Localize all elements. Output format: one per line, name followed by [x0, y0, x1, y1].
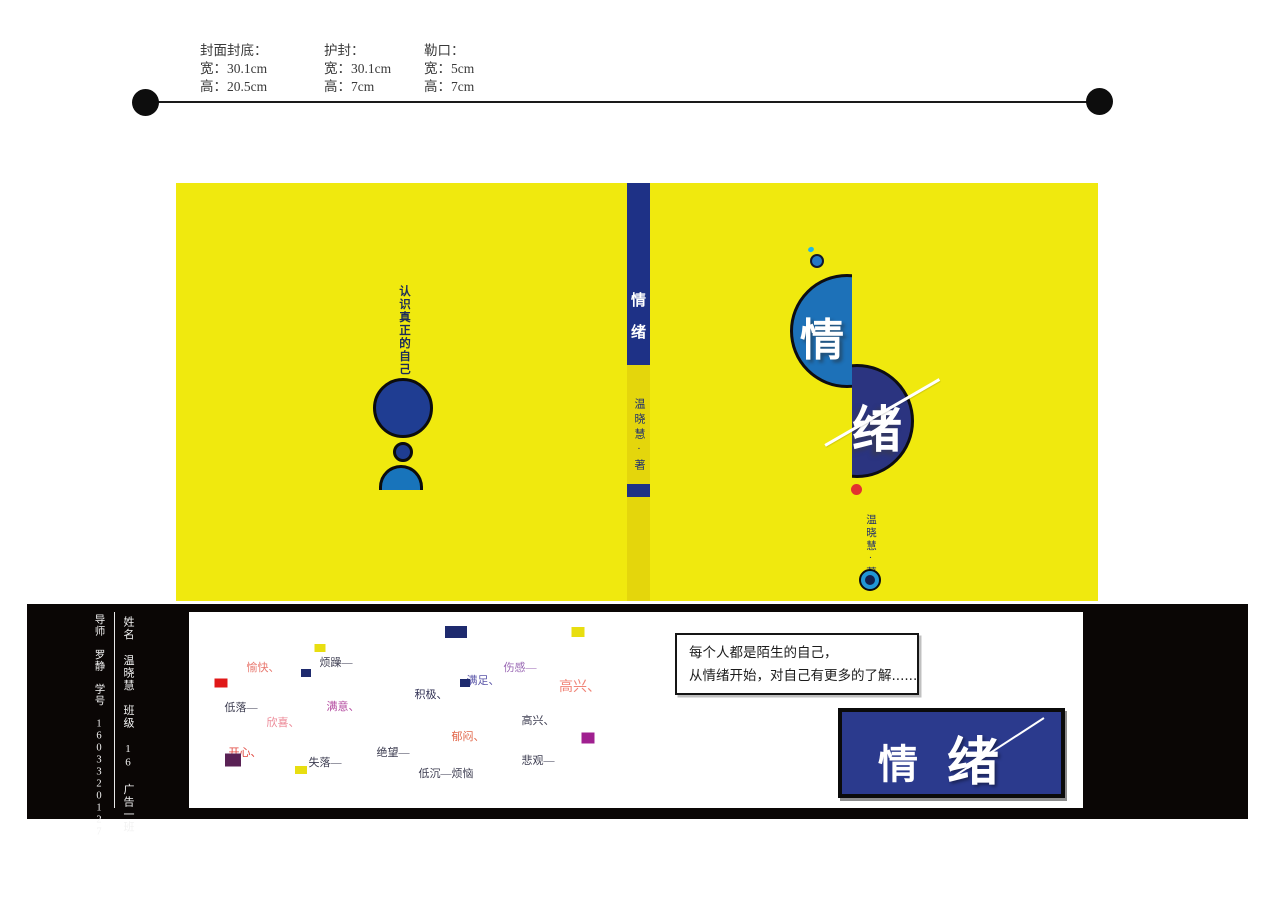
spec-height: 高：7cm — [424, 78, 524, 96]
spec-title: 护封： — [324, 42, 424, 60]
title-semicircle-right: 绪 — [852, 364, 914, 478]
spec-width: 宽：5cm — [424, 60, 524, 78]
spec-column-dust-jacket: 护封： 宽：30.1cm 高：7cm — [324, 42, 424, 96]
logo-char-xu: 绪 — [947, 720, 999, 795]
color-square — [301, 669, 311, 677]
emotion-word: 失落— — [309, 754, 342, 770]
emotion-word: 绝望— — [377, 744, 410, 760]
credits-divider — [114, 612, 115, 808]
color-square — [445, 626, 467, 638]
logo-box: 情 绪 — [838, 708, 1065, 798]
quote-line-1: 每个人都是陌生的自己， — [689, 642, 905, 665]
spec-height: 高：7cm — [324, 78, 424, 96]
color-square — [225, 754, 241, 767]
emotion-word: 满足、 — [467, 672, 500, 688]
quote-box: 每个人都是陌生的自己， 从情绪开始，对自己有更多的了解...... — [675, 633, 919, 695]
red-accent-dot — [851, 484, 862, 495]
spine-title-char-2: 绪 — [627, 321, 650, 342]
target-mark-core — [865, 575, 875, 585]
spec-title: 勒口： — [424, 42, 524, 60]
color-square — [295, 766, 307, 774]
target-mark — [859, 569, 881, 591]
emotion-word: 伤感— — [504, 659, 537, 675]
spec-block: 封面封底： 宽：30.1cm 高：20.5cm 护封： 宽：30.1cm 高：7… — [200, 42, 524, 96]
color-square — [315, 644, 326, 652]
dimension-line — [146, 101, 1099, 103]
color-square — [460, 679, 470, 687]
emotion-word: 悲观— — [522, 752, 555, 768]
emotion-word: 高兴、 — [522, 712, 555, 728]
emotion-word: 欣喜、 — [267, 714, 300, 730]
credits-advisor: 导师 罗静 学号 1603320127 — [93, 614, 104, 839]
spec-width: 宽：30.1cm — [324, 60, 424, 78]
figure-head-circle — [373, 378, 433, 438]
credits-student: 姓名 温晓慧 班级 16 广告一班 — [122, 616, 133, 834]
spec-column-flap: 勒口： 宽：5cm 高：7cm — [424, 42, 524, 96]
emotion-word: 低沉—烦恼 — [419, 765, 474, 781]
emotion-word: 积极、 — [415, 686, 448, 702]
spine-title-char-1: 情 — [627, 289, 650, 310]
blue-accent-circle — [810, 254, 824, 268]
color-square — [572, 627, 585, 637]
title-semicircle-left: 情 — [790, 274, 852, 388]
emotion-word: 愉快、 — [247, 659, 280, 675]
spine-author: 温晓慧·著 — [631, 398, 647, 474]
spec-width: 宽：30.1cm — [200, 60, 324, 78]
emotion-word: 高兴、 — [559, 676, 601, 696]
emotion-word: 郁闷、 — [452, 728, 485, 744]
title-char-qing: 情 — [800, 304, 844, 368]
emotion-word: 满意、 — [327, 698, 360, 714]
dimension-endpoint-right — [1086, 88, 1113, 115]
quote-line-2: 从情绪开始，对自己有更多的了解...... — [689, 665, 905, 688]
color-square — [215, 679, 228, 688]
spine-accent-rect — [627, 484, 650, 497]
emotion-word: 烦躁— — [320, 654, 353, 670]
back-cover-tagline: 认识真正的自己 — [396, 285, 412, 376]
spec-height: 高：20.5cm — [200, 78, 324, 96]
spec-column-cover: 封面封底： 宽：30.1cm 高：20.5cm — [200, 42, 324, 96]
figure-neck-circle — [393, 442, 413, 462]
emotion-word: 低落— — [225, 699, 258, 715]
logo-char-qing: 情 — [878, 732, 918, 790]
book-jacket-design: 封面封底： 宽：30.1cm 高：20.5cm 护封： 宽：30.1cm 高：7… — [0, 0, 1280, 911]
color-square — [582, 733, 595, 744]
dimension-endpoint-left — [132, 89, 159, 116]
spec-title: 封面封底： — [200, 42, 324, 60]
